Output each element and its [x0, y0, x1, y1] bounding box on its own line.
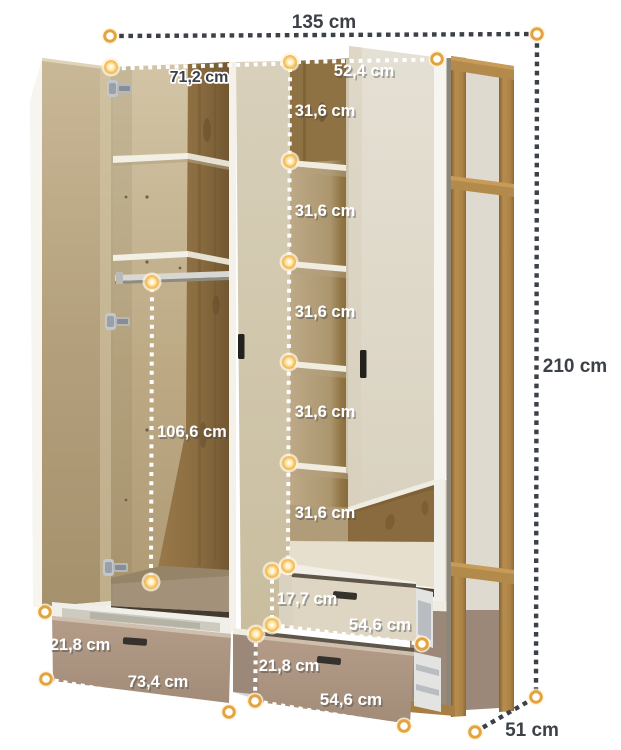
svg-text:71,2 cm: 71,2 cm: [170, 69, 229, 86]
svg-text:54,6 cm: 54,6 cm: [349, 615, 411, 634]
svg-text:106,6 cm: 106,6 cm: [157, 423, 227, 441]
svg-text:52,4 cm: 52,4 cm: [334, 62, 395, 80]
svg-text:17,7 cm: 17,7 cm: [277, 590, 338, 608]
svg-text:21,8 cm: 21,8 cm: [50, 636, 111, 654]
svg-text:51 cm: 51 cm: [505, 720, 559, 741]
svg-text:73,4 cm: 73,4 cm: [128, 673, 189, 691]
svg-text:135 cm: 135 cm: [292, 12, 356, 33]
svg-text:54,6 cm: 54,6 cm: [320, 690, 382, 709]
svg-text:31,6 cm: 31,6 cm: [295, 403, 356, 421]
svg-text:31,6 cm: 31,6 cm: [295, 202, 356, 220]
svg-text:31,6 cm: 31,6 cm: [295, 504, 356, 522]
svg-text:210 cm: 210 cm: [543, 356, 607, 377]
svg-text:31,6 cm: 31,6 cm: [295, 102, 356, 120]
svg-text:21,8 cm: 21,8 cm: [259, 657, 320, 675]
svg-text:31,6 cm: 31,6 cm: [295, 303, 356, 321]
